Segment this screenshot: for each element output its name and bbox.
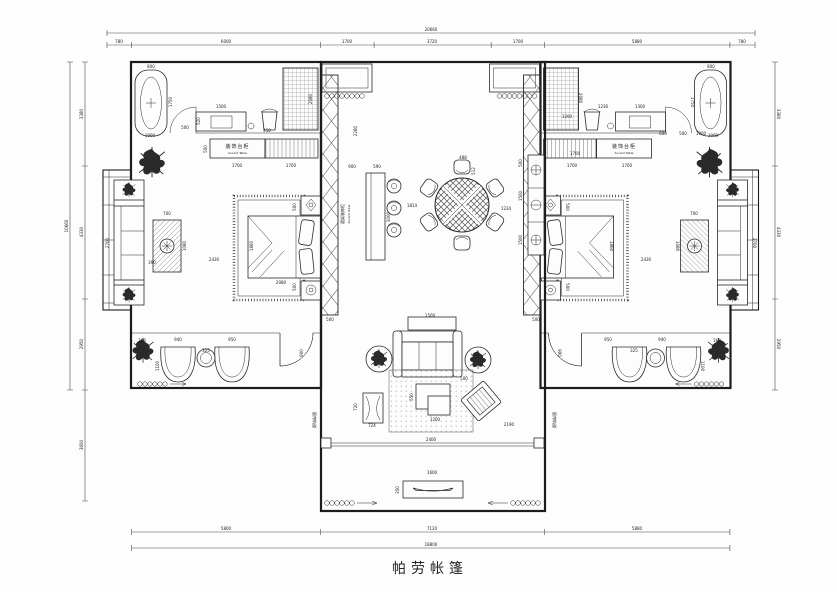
dimension-label: 950 xyxy=(604,337,612,342)
dimension-label: 500 xyxy=(181,125,189,130)
dimension-label: 1500 xyxy=(518,190,523,201)
dimension-label: 5800 xyxy=(221,526,232,531)
dimension-label: 900 xyxy=(557,349,562,357)
curtain-track-label: 窗帘轨道 xyxy=(552,412,558,428)
accent-table-label-cn: 装饰台柜 xyxy=(612,143,636,150)
dimension-label: 500 xyxy=(292,203,297,211)
dimension-label: 500 xyxy=(532,317,540,322)
dimension-label: 1860 xyxy=(249,240,254,251)
dimension-annotations: 2066078060001700372017005880780580071205… xyxy=(64,27,781,547)
dimension-label: 368 xyxy=(138,338,146,343)
dimension-label: 3000 xyxy=(386,211,391,222)
dimension-label: 720 xyxy=(353,403,358,411)
dimension-label: 900 xyxy=(299,349,304,357)
dimension-label: 4330 xyxy=(776,227,781,238)
dimension-label: 1500 xyxy=(216,104,227,109)
dimension-label: 724 xyxy=(368,423,376,428)
dimension-label: 1300 xyxy=(635,104,646,109)
dimension-label: 1200 xyxy=(562,114,573,119)
dimension-label: 500 xyxy=(460,376,468,381)
dimension-label: 1000 xyxy=(696,131,707,136)
dimension-label: 1700 xyxy=(286,163,297,168)
dimension-label: 500 xyxy=(565,283,570,291)
bar-stool xyxy=(387,179,401,193)
dining-chair xyxy=(485,211,506,232)
dimension-label: 500 xyxy=(565,203,570,211)
dimension-label: 500 xyxy=(292,283,297,291)
dimension-label: 1000 xyxy=(708,133,719,138)
dimension-label: 18800 xyxy=(425,542,438,547)
dimension-label: 590 xyxy=(373,164,381,169)
tv-cabinet xyxy=(403,481,463,498)
dimension-label: 1700 xyxy=(232,163,243,168)
dimension-label: 2190 xyxy=(504,422,515,427)
dimension-label: 780 xyxy=(115,39,123,44)
dimension-label: 950 xyxy=(228,337,236,342)
dimension-label: 1700 xyxy=(622,163,633,168)
drawing-sheet: 装饰台柜 Accent Table 装饰台柜 Accent Table 酒架装饰… xyxy=(0,0,837,592)
dimension-label: 6000 xyxy=(221,39,232,44)
dining-chair xyxy=(485,177,506,198)
living-sofa xyxy=(393,317,462,377)
dimension-label: 10660 xyxy=(64,219,69,232)
dimension-label: 1000 xyxy=(145,133,156,138)
dimension-label: 1100 xyxy=(700,361,705,372)
dimension-label: 2080 xyxy=(578,93,583,104)
dimension-label: 940 xyxy=(658,337,666,342)
dimension-label: 1750 xyxy=(168,96,173,107)
dimension-label: 2700 xyxy=(752,238,757,249)
dimension-label: 2400 xyxy=(426,437,437,442)
dimension-label: 512 xyxy=(471,167,476,175)
dimension-label: 1860 xyxy=(609,241,614,252)
dimension-label: 325 xyxy=(202,348,210,353)
dimension-label: 350 xyxy=(395,486,400,494)
dimension-label: 488 xyxy=(459,155,467,160)
dimension-label: 325 xyxy=(630,348,638,353)
dimension-label: 2080 xyxy=(308,93,313,104)
dimension-label: 1080 xyxy=(182,240,187,251)
bar-stool xyxy=(387,223,401,237)
dimension-label: 520 xyxy=(196,117,201,125)
dimension-label: 1600 xyxy=(427,470,438,475)
dimension-lines xyxy=(67,30,778,551)
dimension-label: 5880 xyxy=(632,39,643,44)
dimension-label: 500 xyxy=(326,317,334,322)
dimension-label: 600 xyxy=(659,131,667,136)
dimension-label: 1236 xyxy=(598,104,609,109)
dimension-label: 5880 xyxy=(632,526,643,531)
dimension-label: 900 xyxy=(348,164,356,169)
dimension-label: 450 xyxy=(263,128,271,133)
dimension-label: 2950 xyxy=(776,339,781,350)
round-side-table xyxy=(465,347,491,373)
dimension-label: 1814 xyxy=(407,203,418,208)
dimension-label: 1500 xyxy=(518,234,523,245)
dimension-label: 2950 xyxy=(79,338,84,349)
dimension-label: 940 xyxy=(174,337,182,342)
dimension-label: 1700 xyxy=(342,39,353,44)
dimension-label: 1700 xyxy=(513,39,524,44)
floor-plan-canvas: 装饰台柜 Accent Table 装饰台柜 Accent Table 酒架装饰… xyxy=(0,0,837,592)
dimension-label: 3380 xyxy=(776,109,781,120)
dimension-label: 3720 xyxy=(427,39,438,44)
accent-table-label-en: Accent Table xyxy=(615,151,634,155)
dimension-label: 780 xyxy=(738,39,746,44)
drawing-title: 帕劳帐篷 xyxy=(392,561,468,577)
dimension-label: 550 xyxy=(409,393,414,401)
dimension-label: 3380 xyxy=(79,108,84,119)
dining-chair xyxy=(454,236,470,250)
dimension-label: 3600 xyxy=(79,439,84,450)
dimension-label: 500 xyxy=(518,159,523,167)
curtain-coil xyxy=(325,501,541,506)
dimension-label: 2430 xyxy=(641,257,652,262)
dimension-label: 700 xyxy=(690,211,698,216)
dimension-label: 500 xyxy=(679,131,687,136)
bar-counter xyxy=(366,173,385,260)
accent-table-label-en: Accent Table xyxy=(228,151,247,155)
bench xyxy=(363,393,383,423)
wine-rack-label-en: Accent Table xyxy=(347,204,351,223)
dimension-label: 1200 xyxy=(430,417,441,422)
dining-table xyxy=(435,178,489,232)
round-side-table xyxy=(366,346,392,372)
dimension-label: 2700 xyxy=(105,237,110,248)
console-cabinet xyxy=(528,155,544,255)
dimension-label: 800 xyxy=(147,64,155,69)
dining-chair xyxy=(454,160,470,174)
dimension-label: 700 xyxy=(163,211,171,216)
dimension-label: 2430 xyxy=(209,257,220,262)
dimension-label: 2280 xyxy=(353,125,358,136)
dimension-label: 1500 xyxy=(425,313,436,318)
dimension-label: 500 xyxy=(203,145,208,153)
accent-table-label-cn: 装饰台柜 xyxy=(225,143,249,150)
dimension-label: 1700 xyxy=(570,151,581,156)
dimension-label: 4330 xyxy=(79,226,84,237)
dimension-label: 1234 xyxy=(501,206,512,211)
dimension-label: 368 xyxy=(713,338,721,343)
dimension-label: 1080 xyxy=(675,241,680,252)
dimension-label: 1700 xyxy=(567,163,578,168)
dimension-label: 1750 xyxy=(690,97,695,108)
wine-rack-label-cn: 酒架装饰柜 xyxy=(339,204,345,224)
dimension-label: 7120 xyxy=(427,526,438,531)
curtain-track-label: 窗帘轨道 xyxy=(312,412,318,428)
dining-chair xyxy=(419,211,440,232)
dining-chair xyxy=(419,177,440,198)
dimension-label: 2080 xyxy=(276,280,287,285)
dimension-label: 20660 xyxy=(425,27,438,32)
dimension-label: 390 xyxy=(148,260,156,265)
dimension-label: 1100 xyxy=(155,360,160,371)
dimension-label: 800 xyxy=(707,64,715,69)
